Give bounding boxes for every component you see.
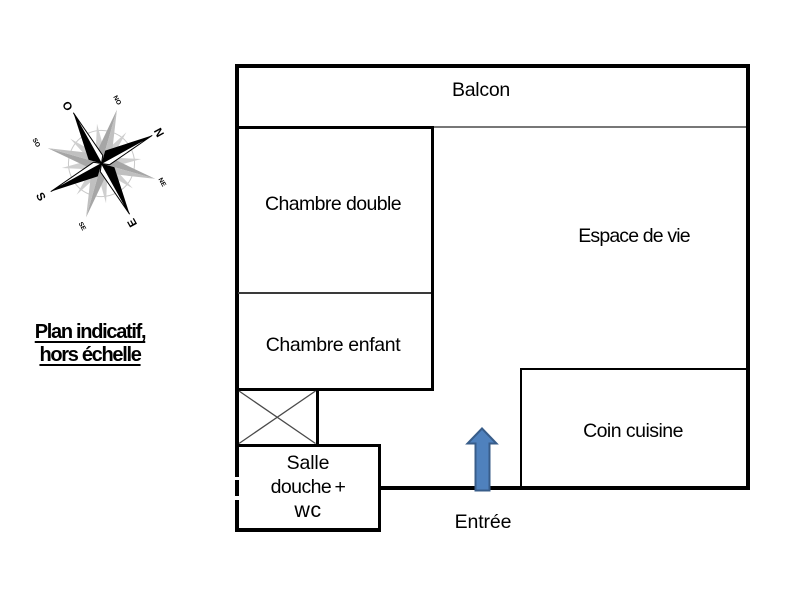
svg-text:O: O bbox=[59, 100, 74, 114]
svg-text:E: E bbox=[126, 216, 140, 229]
svg-text:S: S bbox=[33, 191, 47, 204]
svg-text:SO: SO bbox=[30, 137, 41, 149]
svg-text:N: N bbox=[151, 126, 166, 139]
svg-text:NO: NO bbox=[111, 94, 122, 106]
svg-text:NE: NE bbox=[157, 177, 168, 189]
svg-text:SE: SE bbox=[77, 221, 88, 233]
